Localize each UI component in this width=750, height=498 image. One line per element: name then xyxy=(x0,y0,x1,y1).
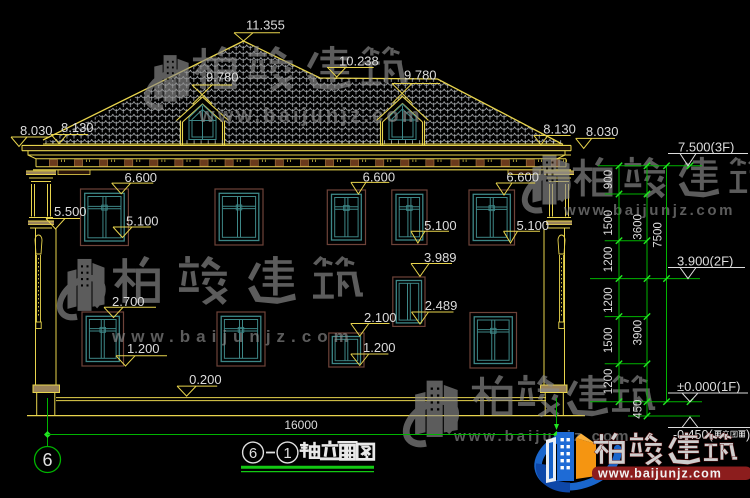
svg-text:www.baijunjz.com: www.baijunjz.com xyxy=(563,202,735,219)
svg-text:5.500: 5.500 xyxy=(54,204,87,219)
svg-text:1200: 1200 xyxy=(603,247,615,273)
svg-text:11.355: 11.355 xyxy=(246,18,285,33)
svg-text:5.100: 5.100 xyxy=(517,218,550,233)
svg-text:10.238: 10.238 xyxy=(339,54,379,69)
svg-text:2.489: 2.489 xyxy=(425,298,458,313)
svg-text:9.780: 9.780 xyxy=(206,70,239,85)
svg-text:6.600: 6.600 xyxy=(506,169,539,184)
svg-text:www.baijunjz.com: www.baijunjz.com xyxy=(198,105,423,127)
svg-text:16000: 16000 xyxy=(284,418,318,432)
svg-text:5.100: 5.100 xyxy=(126,214,159,229)
svg-text:8.030: 8.030 xyxy=(20,123,53,138)
svg-text:3900: 3900 xyxy=(633,320,645,346)
svg-text:1.200: 1.200 xyxy=(363,340,396,355)
svg-text:0.200: 0.200 xyxy=(189,372,222,387)
svg-text:www.baijunjz.com: www.baijunjz.com xyxy=(597,467,722,481)
svg-text:9.780: 9.780 xyxy=(404,68,437,83)
svg-text:7.500(3F): 7.500(3F) xyxy=(678,140,734,155)
svg-text:3.989: 3.989 xyxy=(424,250,457,265)
svg-text:3.900(2F): 3.900(2F) xyxy=(677,254,733,269)
svg-text:5.100: 5.100 xyxy=(424,218,457,233)
svg-text:): ) xyxy=(746,428,750,442)
svg-text:1200: 1200 xyxy=(603,287,615,313)
svg-text:450: 450 xyxy=(633,400,645,419)
svg-text:2.100: 2.100 xyxy=(364,310,397,325)
svg-text:3600: 3600 xyxy=(633,214,645,240)
svg-text:8.030: 8.030 xyxy=(586,124,619,139)
svg-text:1500: 1500 xyxy=(603,328,615,354)
svg-text:1500: 1500 xyxy=(603,210,615,236)
svg-text:6: 6 xyxy=(249,445,257,462)
svg-text:±0.000(1F): ±0.000(1F) xyxy=(677,379,741,394)
svg-text:6: 6 xyxy=(42,450,52,470)
svg-text:8.130: 8.130 xyxy=(543,121,576,136)
svg-text:7500: 7500 xyxy=(653,222,665,248)
svg-text:2.700: 2.700 xyxy=(112,294,145,309)
svg-text:1200: 1200 xyxy=(603,369,615,395)
svg-text:8.130: 8.130 xyxy=(61,120,94,135)
svg-text:1.200: 1.200 xyxy=(127,341,160,356)
svg-text:1: 1 xyxy=(283,445,291,462)
svg-text:900: 900 xyxy=(603,170,615,189)
